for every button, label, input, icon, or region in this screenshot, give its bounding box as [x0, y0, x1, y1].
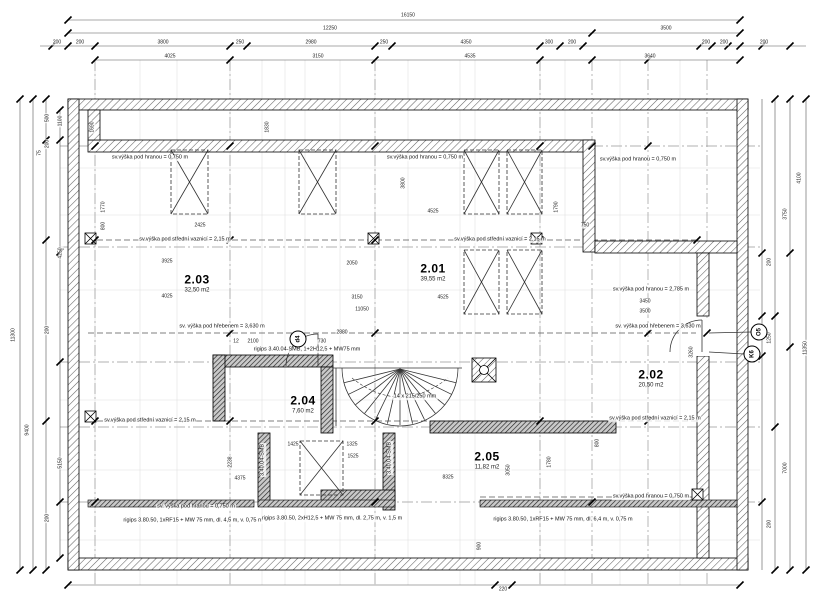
dimension-label: 3500: [659, 27, 672, 32]
dimension-label: 250: [235, 41, 245, 46]
dimension-label: 900: [478, 541, 483, 551]
height-annotation: sv. výška pod hřebenem = 3,630 m: [178, 324, 265, 330]
room-area: 7,60 m2: [290, 409, 315, 415]
height-annotation: sv.výška pod střední vaznicí = 2,15 m: [138, 237, 231, 243]
dimension-label: 1525: [346, 455, 359, 460]
dimension-label: 200: [701, 41, 711, 46]
dimension-label: 4525: [426, 210, 439, 215]
dimension-label: 4535: [463, 55, 476, 60]
dimension-label: 200: [768, 257, 773, 267]
dimension-label: 220: [498, 588, 508, 593]
dimension-label: 2238: [229, 455, 234, 468]
dimension-label: 3260: [690, 345, 695, 358]
dimension-label: 4100: [798, 171, 803, 184]
height-annotation: sv.výška pod střední vaznicí = 2,15 m: [608, 416, 701, 422]
room-label: 2.0332,50 m2: [184, 273, 209, 294]
dimension-label: 4025: [160, 295, 173, 300]
partition-spec-label: rigips 3.80.50, 1xRF15 + MW 75 mm, dl. 6…: [492, 517, 633, 523]
dimension-label: 2425: [193, 224, 206, 229]
dimension-label: 1830: [266, 120, 271, 133]
dimension-label: 3640: [643, 55, 656, 60]
room-label: 2.0511,82 m2: [474, 450, 499, 471]
height-annotation: sv.výška pod střední vaznicí = 2,15 m: [103, 418, 196, 424]
dimension-label: 12250: [322, 27, 338, 32]
plan-labels: 1615012250350020020038002502980250435030…: [0, 0, 824, 604]
dimension-label: 4375: [233, 477, 246, 482]
dimension-label: 3450: [638, 300, 651, 305]
room-number: 2.04: [290, 394, 315, 408]
dimension-label: 1690: [91, 120, 96, 133]
dimension-label: 75: [38, 149, 43, 157]
dimension-label: 2980: [304, 41, 317, 46]
dimension-label: 3150: [350, 296, 363, 301]
dimension-label: 250: [379, 41, 389, 46]
dimension-label: 1770: [102, 200, 107, 213]
dimension-label: 4025: [163, 55, 176, 60]
dimension-label: 11300: [12, 327, 17, 343]
room-area: 32,50 m2: [184, 288, 209, 294]
height-annotation: sv.výška pod hranou = 0,750 m: [386, 155, 464, 161]
dimension-label: 3150: [311, 55, 324, 60]
room-area: 20,50 m2: [638, 383, 663, 389]
height-annotation: 3.40.04-SMB: [260, 443, 266, 477]
reference-marker: d4: [290, 331, 307, 348]
height-annotation: sv. výška pod hřebenem = 3,630 m: [614, 324, 701, 330]
dimension-label: 200: [46, 513, 51, 523]
room-label: 2.0139,55 m2: [420, 262, 445, 283]
dimension-label: 730: [317, 340, 327, 345]
room-number: 2.03: [184, 273, 209, 287]
room-number: 2.05: [474, 450, 499, 464]
dimension-label: 3925: [160, 260, 173, 265]
dimension-label: 800: [596, 438, 601, 448]
partition-spec-label: rigips 3.80.50, 1xRF15 + MW 75 mm, dl. 4…: [122, 518, 263, 524]
dimension-label: 1325: [345, 443, 358, 448]
dimension-label: 11050: [354, 308, 370, 313]
dimension-label: 200: [719, 41, 729, 46]
room-area: 11,82 m2: [474, 465, 499, 471]
dimension-label: 4250: [59, 246, 64, 259]
dimension-label: 200: [46, 325, 51, 335]
dimension-label: 300: [544, 41, 554, 46]
dimension-label: 750: [580, 224, 590, 229]
dimension-label: 8325: [441, 476, 454, 481]
dimension-label: 2880: [335, 331, 348, 336]
dimension-label: 3750: [784, 207, 789, 220]
dimension-label: 3800: [156, 41, 169, 46]
dimension-label: 16150: [400, 14, 416, 19]
dimension-label: 9400: [26, 423, 31, 436]
dimension-label: 200: [75, 41, 85, 46]
dimension-label: 11350: [804, 340, 809, 356]
dimension-label: 200: [52, 41, 62, 46]
height-annotation: sv.výška pod střední vaznicí = 2,15 m: [453, 237, 546, 243]
dimension-label: 3050: [507, 463, 512, 476]
dimension-label: 1100: [59, 115, 64, 128]
dimension-label: 3800: [402, 176, 407, 189]
height-annotation: 3.40.04-SMB: [387, 441, 393, 475]
height-annotation: sv.výška pod hranou = 0,750 m: [599, 157, 677, 163]
room-area: 39,55 m2: [420, 277, 445, 283]
dimension-label: 500: [46, 113, 51, 123]
dimension-label: 200: [768, 519, 773, 529]
room-number: 2.01: [420, 262, 445, 276]
height-annotation: sv.výška pod hranou = 0,750 m: [111, 155, 189, 161]
dimension-label: 1425: [286, 443, 299, 448]
dimension-label: 3500: [638, 310, 651, 315]
dimension-label: 200: [759, 41, 769, 46]
room-label: 2.0220,50 m2: [638, 368, 663, 389]
dimension-label: 200: [567, 41, 577, 46]
height-annotation: 14 x 215/250 mm: [393, 394, 438, 400]
dimension-label: 5150: [59, 456, 64, 469]
dimension-label: 12: [232, 340, 240, 345]
height-annotation: sv. výška pod hranou = 0,750 m: [156, 504, 236, 510]
floor-plan-canvas: 1615012250350020020038002502980250435030…: [0, 0, 824, 604]
dimension-label: 1790: [555, 200, 560, 213]
room-label: 2.047,60 m2: [290, 394, 315, 415]
dimension-label: 4350: [459, 41, 472, 46]
height-annotation: sv.výška pod hranou = 2,785 m: [612, 287, 690, 293]
dimension-label: 2100: [246, 340, 259, 345]
dimension-label: 800: [102, 221, 107, 231]
reference-marker: K6: [744, 346, 761, 363]
dimension-label: 4525: [436, 296, 449, 301]
reference-marker: O5: [751, 324, 768, 341]
dimension-label: 1780: [548, 455, 553, 468]
partition-spec-label: rigips 3.80.50, 2xH12,5 + MW 75 mm, dl. …: [261, 516, 403, 522]
dimension-label: 200: [46, 139, 51, 149]
height-annotation: sv.výška pod hranou = 0,750 m: [612, 494, 690, 500]
height-annotation: rigips 3.40.04-SMB, 1+2H12,5 + MW75 mm: [253, 347, 362, 353]
room-number: 2.02: [638, 368, 663, 382]
dimension-label: 7000: [784, 461, 789, 474]
dimension-label: 1250: [768, 331, 773, 344]
dimension-label: 2050: [345, 262, 358, 267]
